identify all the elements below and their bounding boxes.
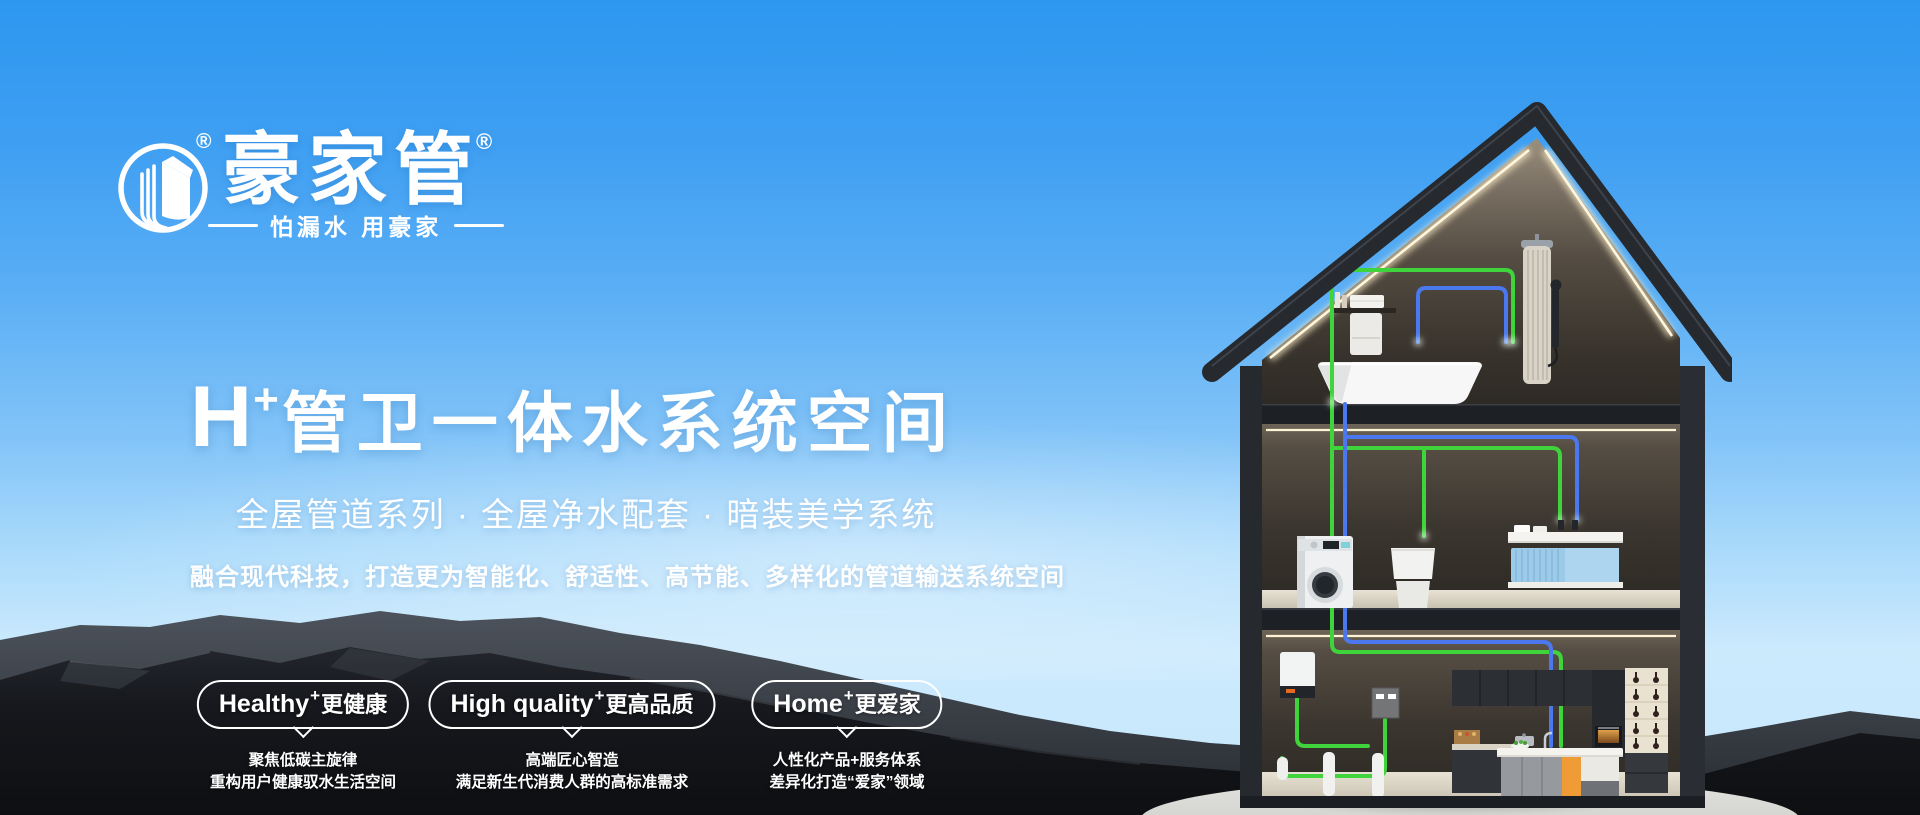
brand-tagline-text: 怕漏水 用豪家	[270, 208, 442, 242]
feature-cn-label: 更健康	[321, 692, 387, 717]
tagline-dash-right	[454, 224, 504, 227]
wall-faucet-icon	[1558, 520, 1564, 530]
hero-description: 融合现代科技，打造更为智能化、舒适性、高节能、多样化的管道输送系统空间	[190, 557, 982, 592]
water-heater	[1280, 652, 1315, 698]
feature-plus: +	[310, 686, 320, 706]
brand-registered-mark: ®	[476, 131, 492, 153]
feature-desc-line1: 聚焦低碳主旋律	[197, 750, 409, 772]
feature-desc-line2: 满足新生代消费人群的高标准需求	[428, 772, 715, 794]
feature-en-label: Healthy	[219, 690, 309, 718]
brand-logo-icon	[116, 140, 212, 236]
feature-cn-label: 更高品质	[605, 692, 693, 717]
hero-title-h: H	[190, 369, 252, 465]
control-box-label	[1388, 694, 1396, 699]
logo-registered-mark: ®	[196, 130, 211, 154]
feature-desc-line2: 差异化打造“爱家”领域	[751, 772, 942, 794]
hero-title-text: 管卫一体水系统空间	[282, 386, 957, 460]
hero-subtitle: 全屋管道系列 · 全屋净水配套 · 暗装美学系统	[190, 488, 982, 536]
water-purifier-tower	[1372, 753, 1384, 798]
brand-name: 豪家管	[222, 125, 480, 214]
control-box	[1372, 688, 1399, 718]
control-box-label	[1376, 694, 1384, 699]
water-purifier-tower	[1323, 752, 1335, 796]
hero-section: H+管卫一体水系统空间 全屋管道系列 · 全屋净水配套 · 暗装美学系统 融合现…	[190, 374, 982, 592]
feature-high-quality: High quality+更高品质 高端匠心智造 满足新生代消费人群的高标准需求	[428, 680, 715, 795]
feature-plus: +	[595, 686, 605, 706]
island-orange-panel	[1562, 757, 1581, 796]
brand-logo-mark: ®	[116, 140, 212, 236]
floor-slab	[1240, 608, 1705, 630]
banner: ® 豪家管® 怕漏水 用豪家 H+管卫一体水系统空间 全屋管道系列 · 全屋净水…	[0, 0, 1920, 815]
washing-machine	[1297, 536, 1353, 608]
floor-filter-unit	[1277, 757, 1288, 780]
feature-healthy: Healthy+更健康 聚焦低碳主旋律 重构用户健康驭水生活空间	[197, 680, 409, 795]
feature-desc-line2: 重构用户健康驭水生活空间	[197, 772, 409, 794]
brand-tagline: 怕漏水 用豪家	[222, 208, 490, 242]
feature-desc-line1: 人性化产品+服务体系	[751, 750, 942, 772]
tagline-dash-left	[208, 224, 258, 227]
feature-cn-label: 更爱家	[855, 692, 921, 717]
feature-en-label: High quality	[450, 690, 593, 718]
feature-plus: +	[844, 686, 854, 706]
brand-name-line: 豪家管®	[222, 130, 496, 209]
feature-desc-line1: 高端匠心智造	[428, 750, 715, 772]
wall-faucet-icon	[1572, 520, 1578, 530]
house-illustration	[1202, 96, 1732, 808]
hero-title: H+管卫一体水系统空间	[190, 374, 982, 460]
hero-title-plus: +	[253, 375, 279, 424]
feature-home: Home+更爱家 人性化产品+服务体系 差异化打造“爱家”领域	[751, 680, 942, 795]
floor-slab	[1240, 404, 1705, 424]
wine-rack	[1625, 668, 1668, 753]
feature-en-label: Home	[773, 690, 842, 718]
